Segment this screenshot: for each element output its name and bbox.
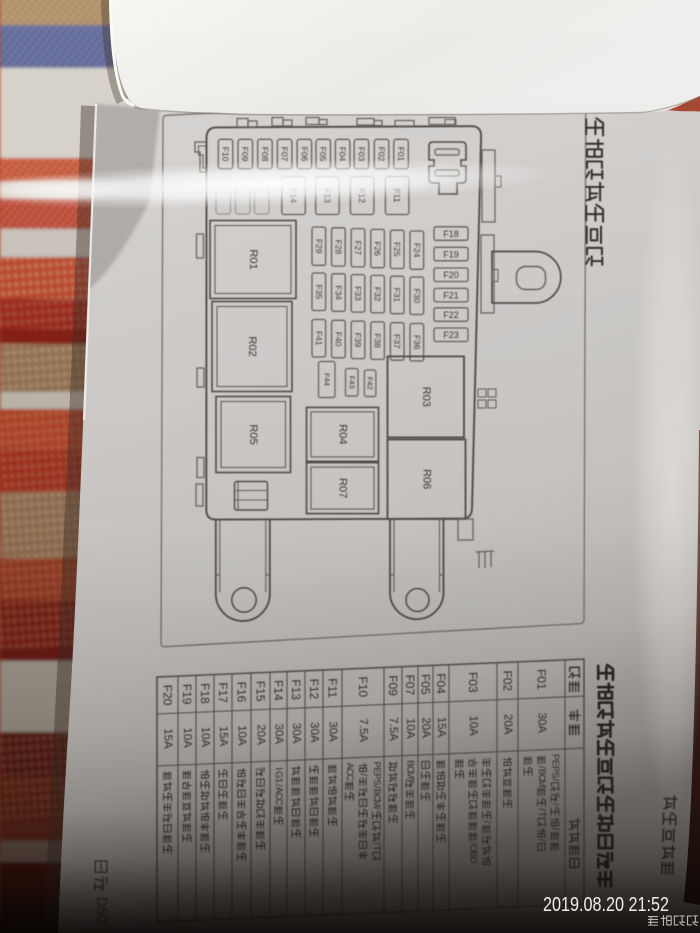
svg-text:2019.08.20 21:52: 2019.08.20 21:52 [543, 893, 669, 916]
